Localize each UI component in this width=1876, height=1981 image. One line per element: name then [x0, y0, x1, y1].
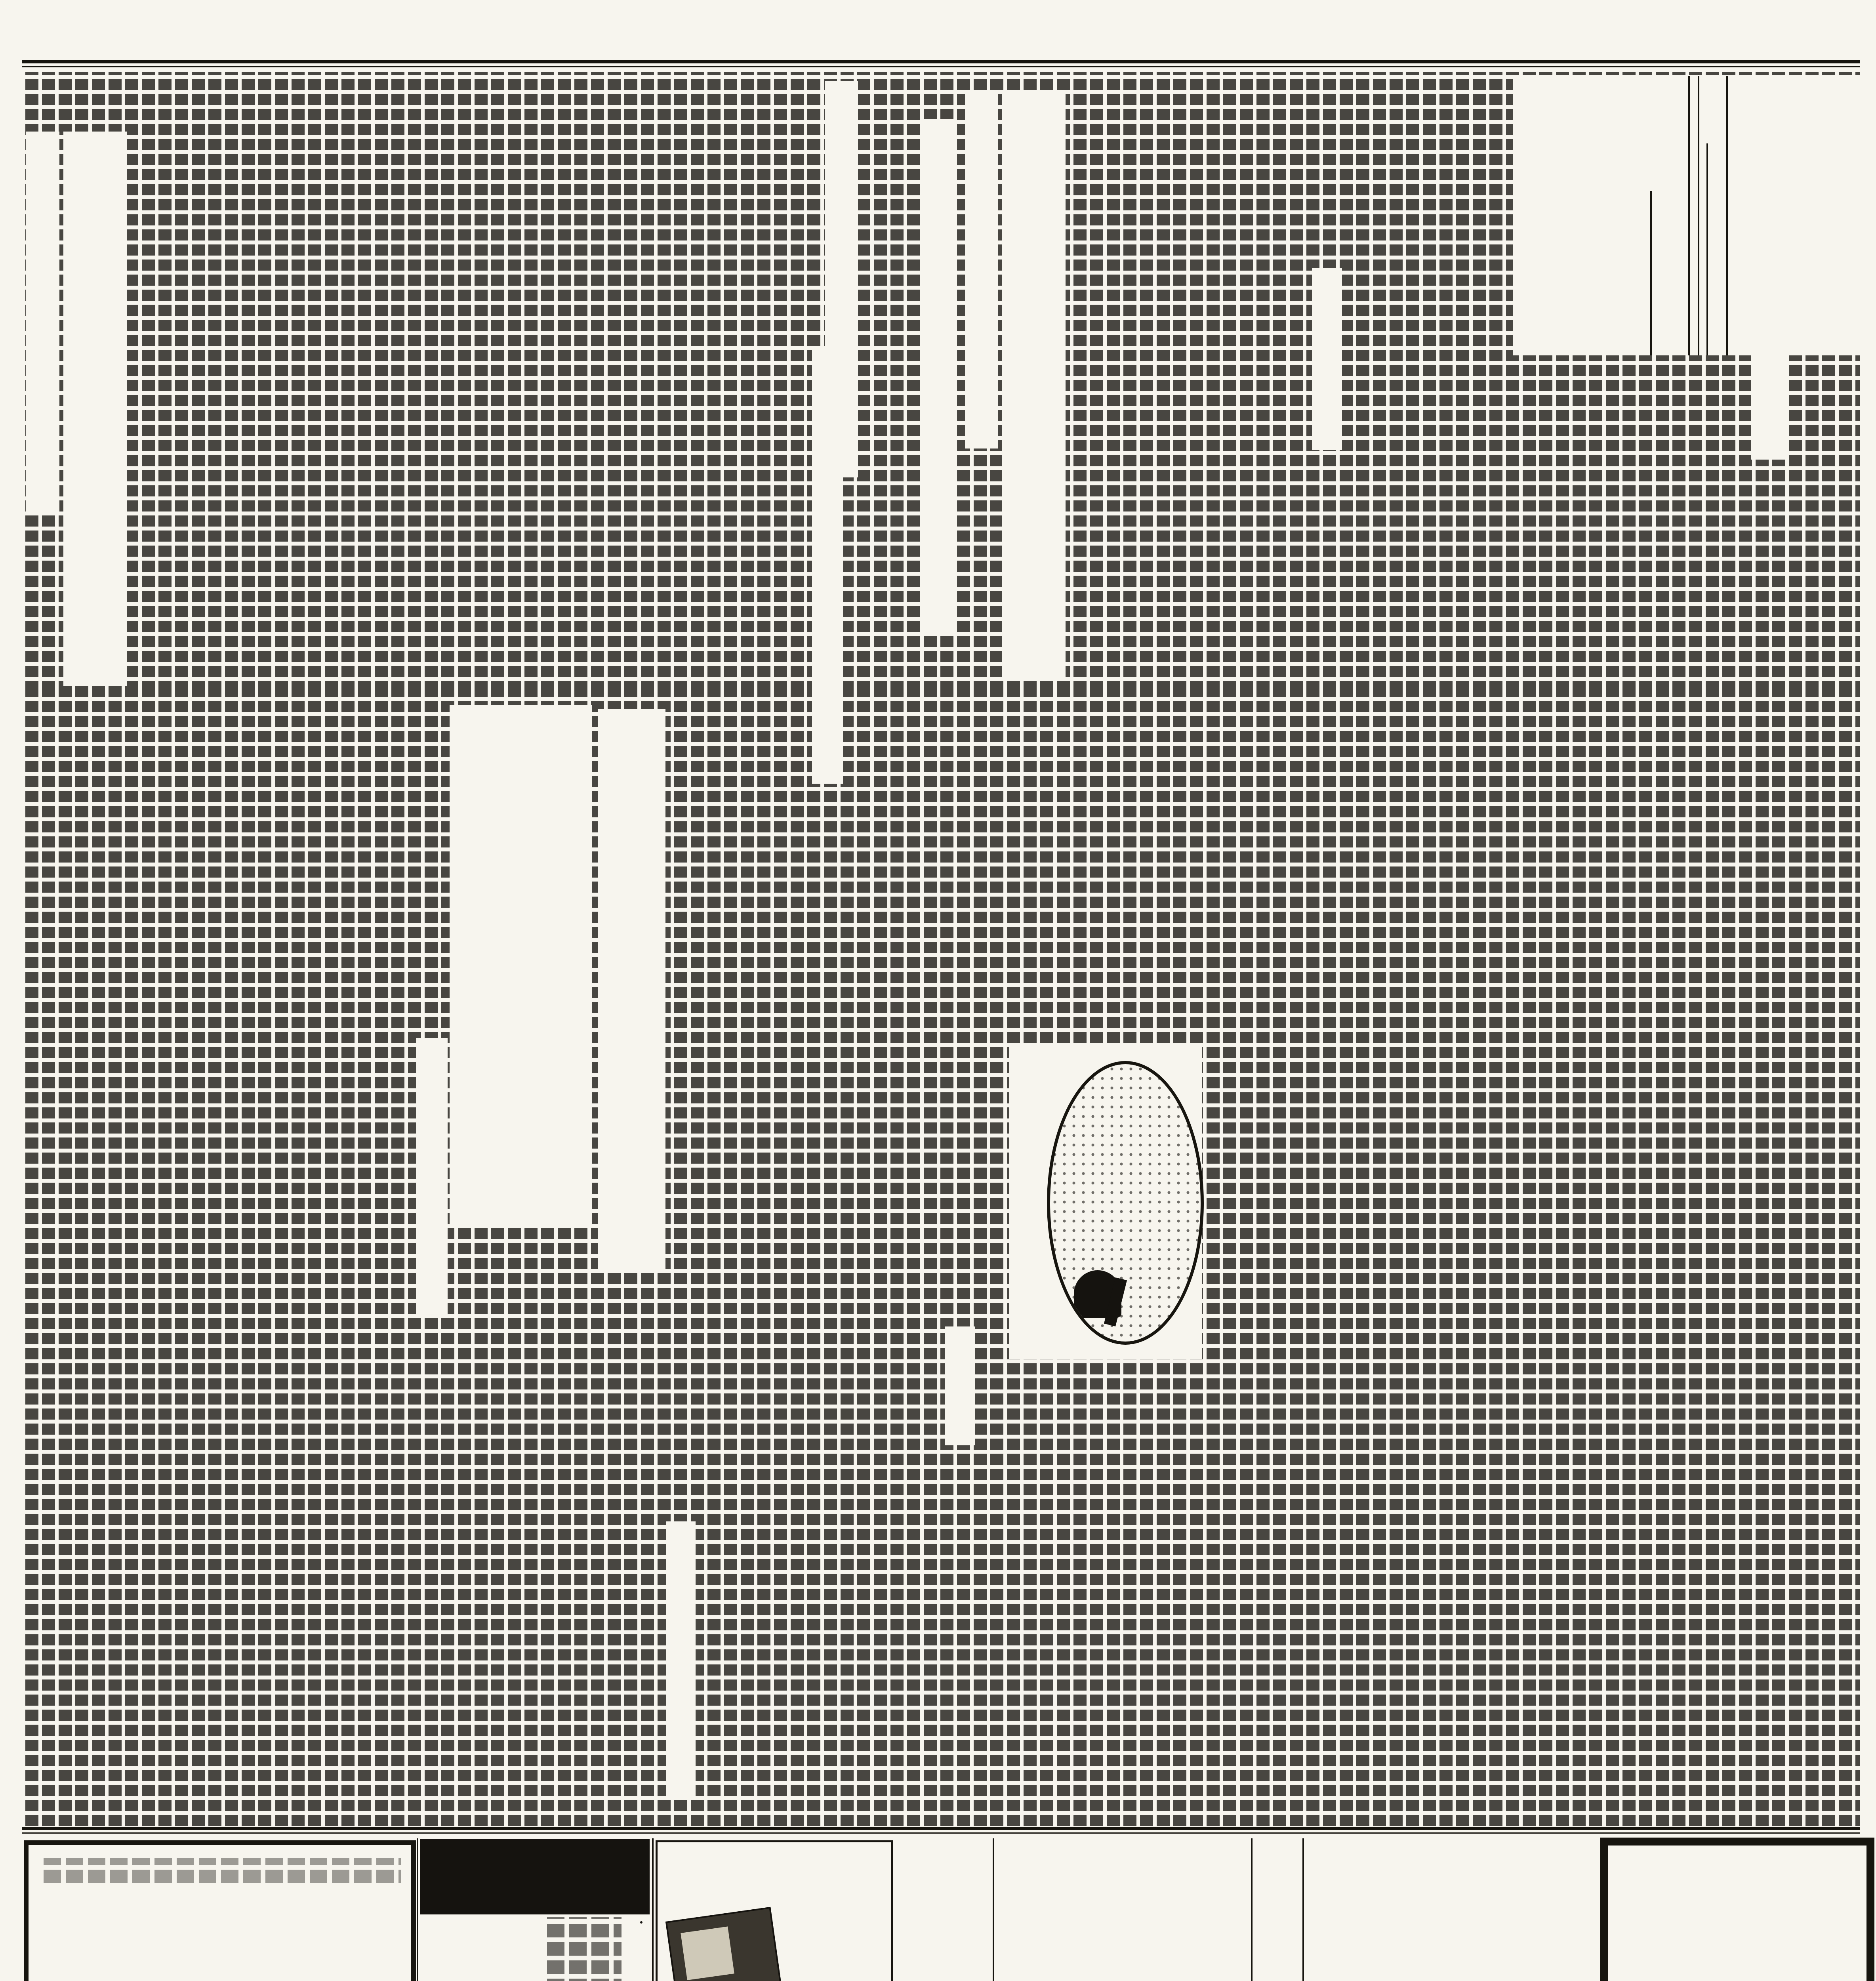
farm-excerpt-1 [598, 709, 665, 1272]
humboldt-title [1456, 1852, 1515, 1981]
war-headline-col-4 [1670, 124, 1681, 355]
huanhai-novel-ad [656, 1840, 893, 1981]
date-line [1244, 19, 1862, 51]
humboldt-note [1309, 1844, 1365, 1981]
masthead-rule [22, 60, 1860, 63]
farm-crosshead-2 [666, 1521, 696, 1799]
mingdao-literature-ad [996, 1840, 1250, 1981]
novel-ad-title [816, 1854, 860, 1981]
editorial-ads-separator [22, 1827, 1860, 1830]
row1-divider-2 [652, 1838, 654, 1981]
mingdao-blurb [1159, 1846, 1246, 1981]
edition-label [83, 21, 226, 52]
shorthand-meta [898, 1842, 920, 1981]
shorthand-ad [896, 1838, 991, 1981]
row1-divider-4 [1251, 1838, 1253, 1981]
world-supply-address [1256, 1844, 1276, 1981]
knowledge-circle-illustration [1047, 1061, 1204, 1345]
war-excerpt-strategy [63, 132, 127, 686]
war-head-intro [1751, 329, 1785, 460]
war-excerpt-national [923, 119, 955, 634]
war-excerpt-intro [1002, 92, 1066, 678]
war-head-s2c [1312, 268, 1342, 450]
yuanxing-publisher-info [1611, 1849, 1631, 1981]
farm-article-title-block [450, 705, 592, 1224]
knowledge-issue [1012, 1283, 1040, 1358]
humboldt-gift-ad [1305, 1840, 1598, 1981]
music-audiophile-ad: ・ [420, 1839, 650, 1981]
mingdao-extra [1107, 1846, 1155, 1981]
war-head-s2b [26, 132, 59, 512]
zhongliher-collection-ad [1600, 1838, 1874, 1981]
shorthand-tag2 [970, 1969, 989, 1981]
war-head-s2 [965, 92, 998, 448]
editorial-ads-separator-2 [22, 1832, 1860, 1834]
music-ad-postal-phone: ・ [634, 1917, 646, 1981]
war-headline-col-5 [1650, 191, 1663, 355]
novel-ad-spec-price [784, 1850, 812, 1981]
war-headline-col-1 [1726, 76, 1739, 355]
war-headline-block [1513, 76, 1876, 355]
shorthand-title [920, 1850, 967, 1981]
knowledge-magazine-ad [1009, 1045, 1202, 1359]
farm-excerpt-2 [416, 1038, 448, 1315]
world-supply-strip [1254, 1840, 1301, 1981]
war-head-conclusion [945, 1326, 975, 1445]
novel-book-cover-image [665, 1907, 787, 1981]
middle-text-columns [22, 692, 1860, 1826]
war-headline-col-2 [1706, 143, 1719, 355]
farm-crosshead-1 [812, 348, 843, 784]
novel-ad-series [864, 1850, 887, 1981]
knowledge-editor [1012, 1053, 1040, 1275]
row1-divider-5 [1302, 1838, 1304, 1981]
row1-divider-3 [993, 1838, 994, 1981]
novel-ad-tags [658, 1842, 891, 1848]
music-ad-title [420, 1839, 650, 1842]
humboldt-blurb [1369, 1844, 1424, 1981]
english-textbook-ad [24, 1840, 416, 1981]
zhongliher-note [1632, 1849, 1653, 1981]
humboldt-award2 [1518, 1916, 1541, 1981]
shorthand-tag1 [970, 1842, 989, 1961]
masthead [705, 0, 1161, 63]
humboldt-award1 [1543, 1900, 1567, 1981]
masthead-rule-2 [22, 66, 1860, 67]
zhongliher-title [1814, 1857, 1866, 1981]
english-ad-imprint-blur [39, 1858, 401, 1883]
zhongliher-book-list [1655, 1850, 1812, 1981]
humboldt-author-price [1424, 1848, 1452, 1981]
music-ad-body-blur [542, 1917, 622, 1981]
row1-divider-1 [417, 1838, 418, 1981]
weekday-label [357, 21, 491, 52]
